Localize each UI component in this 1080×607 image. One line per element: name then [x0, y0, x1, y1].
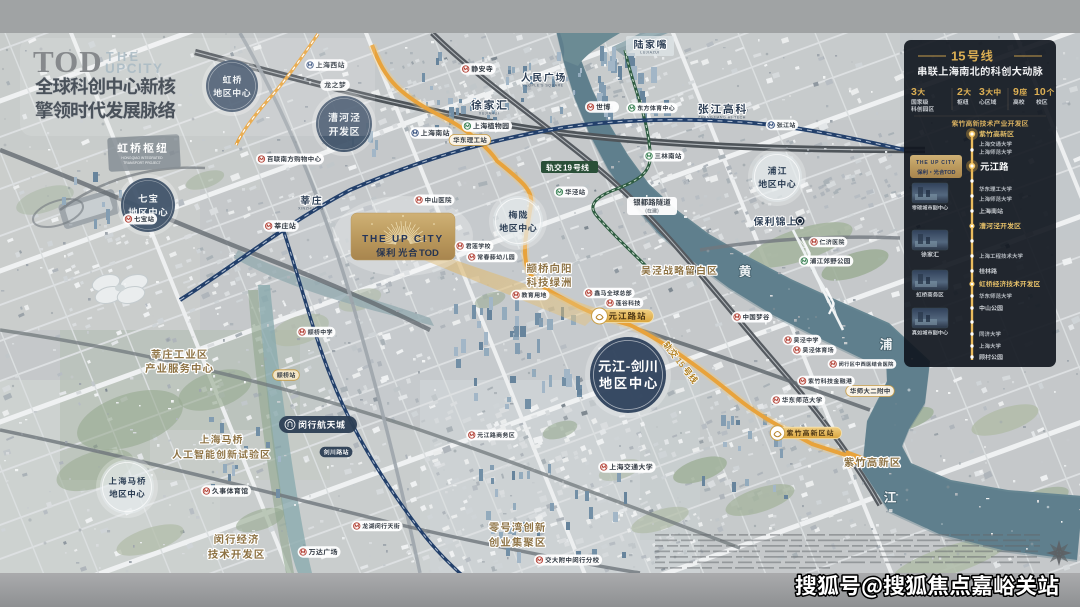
svg-text:9: 9	[1013, 86, 1019, 98]
svg-text:THE UP CITY: THE UP CITY	[916, 160, 956, 166]
svg-text:PEOPLE'S SQUARE: PEOPLE'S SQUARE	[522, 84, 563, 88]
svg-text:19: 19	[563, 164, 572, 173]
svg-text:TOD: TOD	[419, 248, 439, 259]
svg-text:HONGQIAO INTEGRATED: HONGQIAO INTEGRATED	[121, 156, 163, 160]
svg-text:3: 3	[911, 86, 917, 98]
svg-text:XINZHUANG: XINZHUANG	[298, 207, 324, 211]
svg-text:TRANSPORT PROJECT: TRANSPORT PROJECT	[123, 161, 161, 165]
svg-text:UPCITY: UPCITY	[105, 61, 164, 76]
svg-text:2: 2	[957, 86, 963, 98]
svg-text:THE UP CITY: THE UP CITY	[362, 234, 444, 245]
svg-text:TOD: TOD	[33, 44, 103, 79]
svg-text:15: 15	[951, 49, 965, 64]
svg-text:LUJIAZUI: LUJIAZUI	[640, 51, 660, 55]
svg-text:10: 10	[1034, 86, 1046, 98]
svg-text:XUJIAHUI: XUJIAHUI	[479, 112, 499, 116]
svg-text:ZHANGJIANG HI-TECH: ZHANGJIANG HI-TECH	[698, 116, 746, 120]
svg-text:TOD: TOD	[944, 170, 956, 176]
svg-text:3: 3	[979, 86, 985, 98]
